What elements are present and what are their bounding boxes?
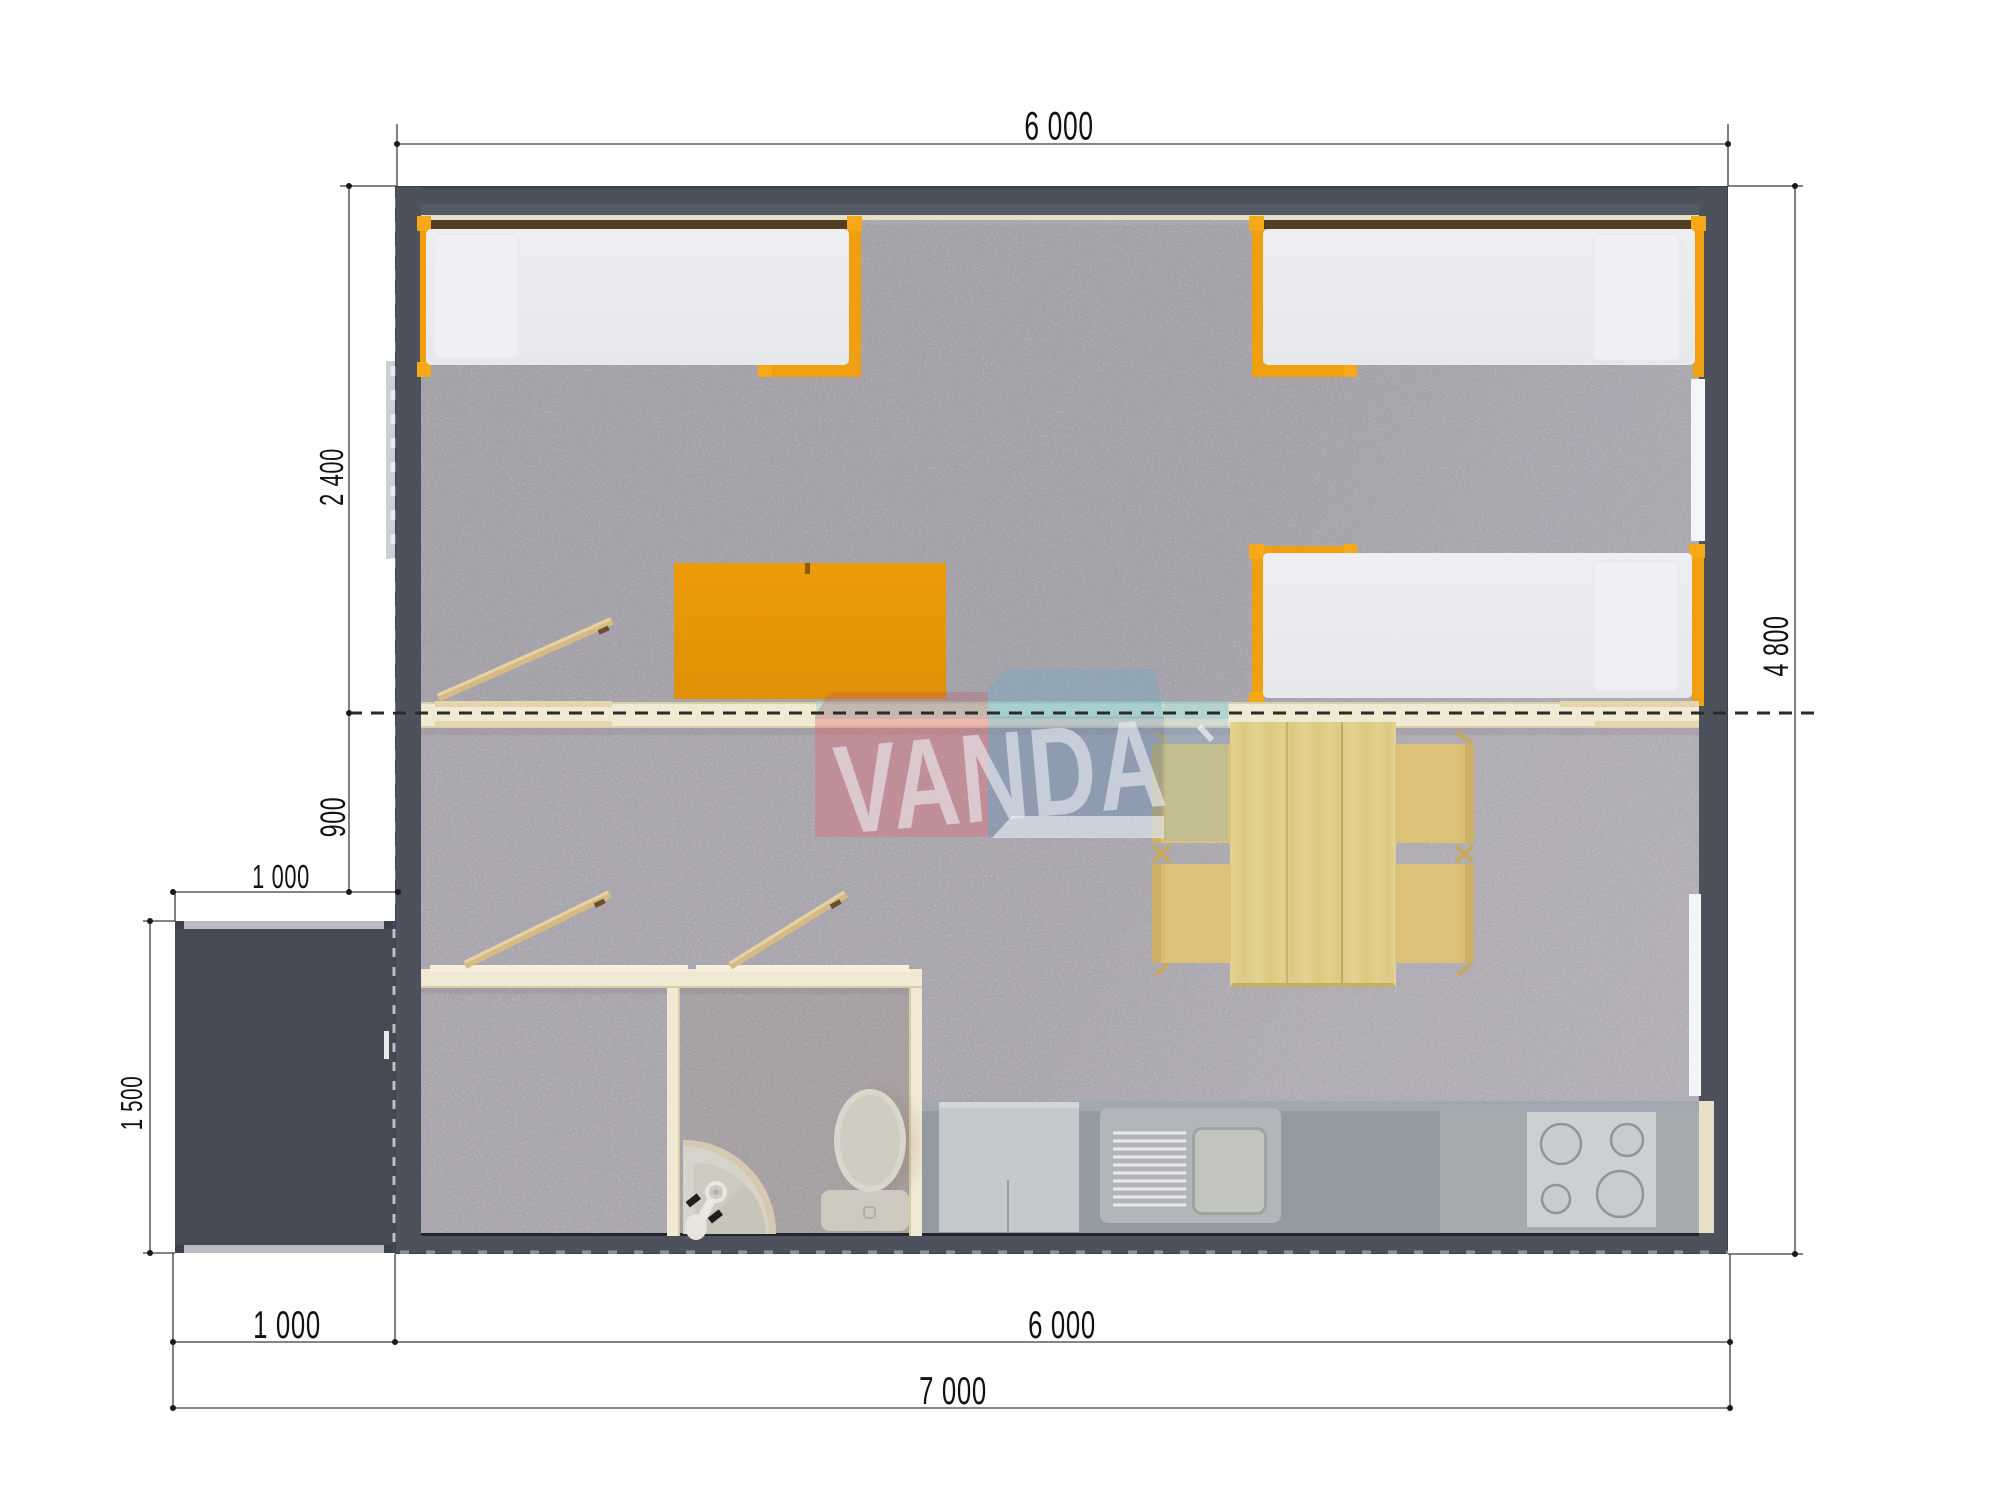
svg-text:VANDA: VANDA — [829, 693, 1172, 861]
